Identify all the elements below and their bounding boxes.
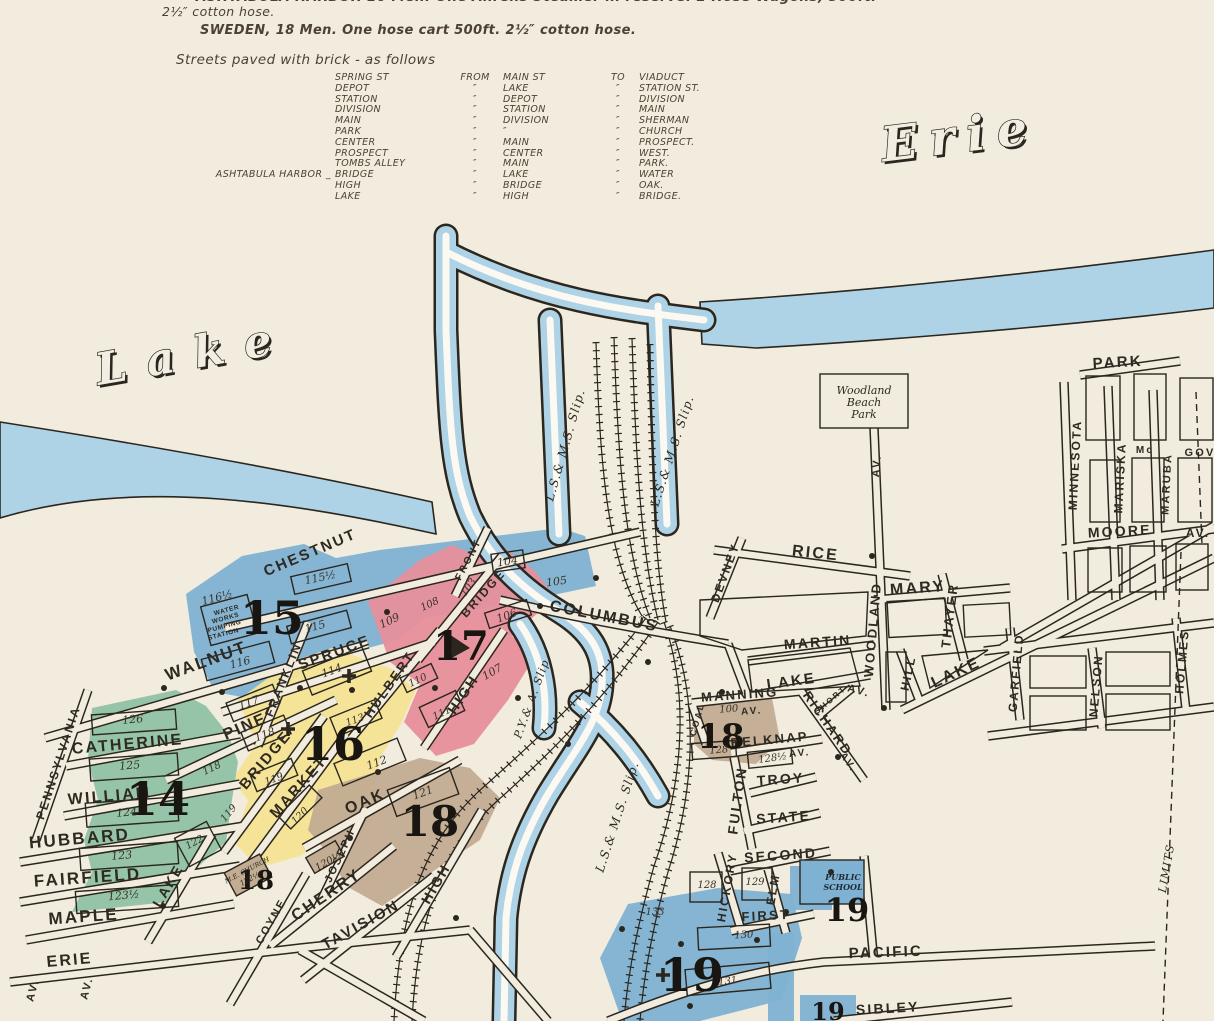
district-number: 19 [825,891,870,929]
water-body-label: Lake [90,311,296,396]
fire-dept-note-line3: SWEDEN, 18 Men. One hose cart 500ft. 2½″… [200,23,636,38]
street-label: AV. [789,747,812,760]
district-number: 19 [660,948,724,1002]
school-label: SCHOOL [823,882,863,892]
street-label: DEVNEY [708,541,743,605]
street-label: AV. [741,705,763,717]
sanborn-map-page: LakeLakeErieErieCHESTNUTWALNUTSPRUCEFRAN… [0,0,1214,1021]
street-label: FIRST [741,907,790,925]
paved-street-row: LAKE″HIGH″BRIDGE. [195,192,754,203]
street-label: AV. [846,682,871,700]
district-19-strip2 [768,933,794,1021]
street-label: PARK [1092,353,1143,373]
lake-band-west [0,422,436,534]
block-number: 130 [734,929,754,941]
paved-streets-table: SPRING STFROMMAIN STTOVIADUCTDEPOT″LAKE″… [195,73,754,203]
street-label: MARUBA [1159,453,1174,516]
block-number: 133 [645,907,664,918]
street-label: TROY [756,769,805,788]
street-label: PACIFIC [848,943,923,963]
district-number: 15 [240,591,304,645]
street-label: SIBLEY [855,998,920,1017]
paved-street-row: DEPOT″LAKE″STATION ST. [195,84,754,95]
block-number: 131 [718,975,738,988]
lake-shore [0,250,1214,534]
slip-label: LIMITS [1156,843,1178,895]
block-number: 126 [122,712,144,727]
slip-label: L.S.& M.S. Slip. [592,759,641,875]
street-maruba [1153,390,1160,600]
street-label: Mc [1136,445,1154,456]
block-number: 123½ [107,888,140,904]
street-label: MOORE [1087,521,1152,540]
street-label: AV. [870,454,884,478]
block-number: 129 [745,877,765,888]
paved-street-row: CENTER″MAIN″PROSPECT. [195,138,754,149]
fire-dept-note-line1: ASHTABULA HARBOR 16 Men. One Ahrens Stea… [196,0,877,5]
block-number: 124 [116,805,138,820]
street-label: ERIE [46,950,93,971]
block-number: 123 [111,848,133,863]
paved-streets-title: Streets paved with brick - as follows [176,52,435,68]
lake-band-east [700,250,1214,348]
block-number: 100 [719,703,739,715]
street-label: MARISKA [1111,442,1129,514]
district-number: 18 [401,797,459,846]
block-number: 125 [119,758,141,773]
block-number: 128 [709,744,729,756]
street-label: AV. [78,976,96,1001]
street-diag1 [300,950,424,1021]
district-number: 19 [811,997,844,1021]
street-label: STATE [756,807,812,827]
fire-dept-note-line2: 2½″ cotton hose. [162,4,275,19]
district-number: 17 [433,623,489,670]
school-label: PUBLIC [824,872,861,882]
street-label: GOV [1184,447,1214,459]
park-label: Park [850,408,877,421]
block-number: 128 [697,880,716,891]
water-body-label: Erie [876,99,1042,174]
street-label: AV. [1186,526,1211,540]
